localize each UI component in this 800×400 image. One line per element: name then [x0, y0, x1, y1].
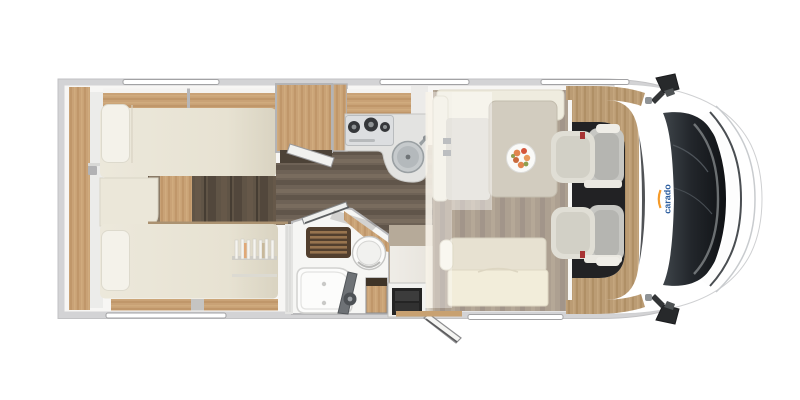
svg-text:carado: carado: [663, 184, 673, 214]
